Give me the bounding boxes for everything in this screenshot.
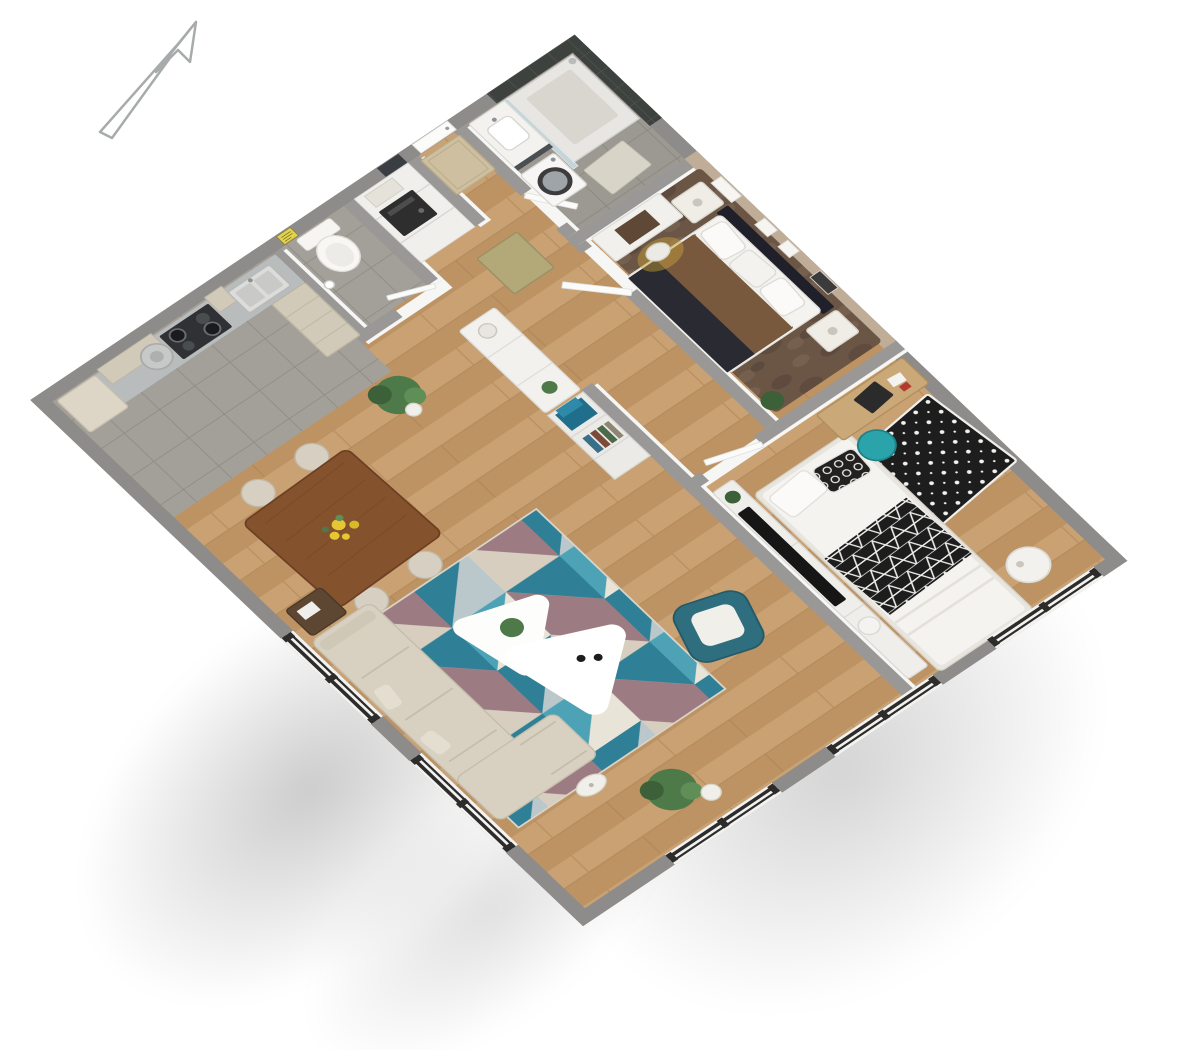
north-arrow bbox=[78, 0, 278, 150]
apartment-scene bbox=[30, 35, 1128, 927]
floorplan-3d-render: { "image_type": "3d-isometric-apartment-… bbox=[0, 0, 1200, 1050]
